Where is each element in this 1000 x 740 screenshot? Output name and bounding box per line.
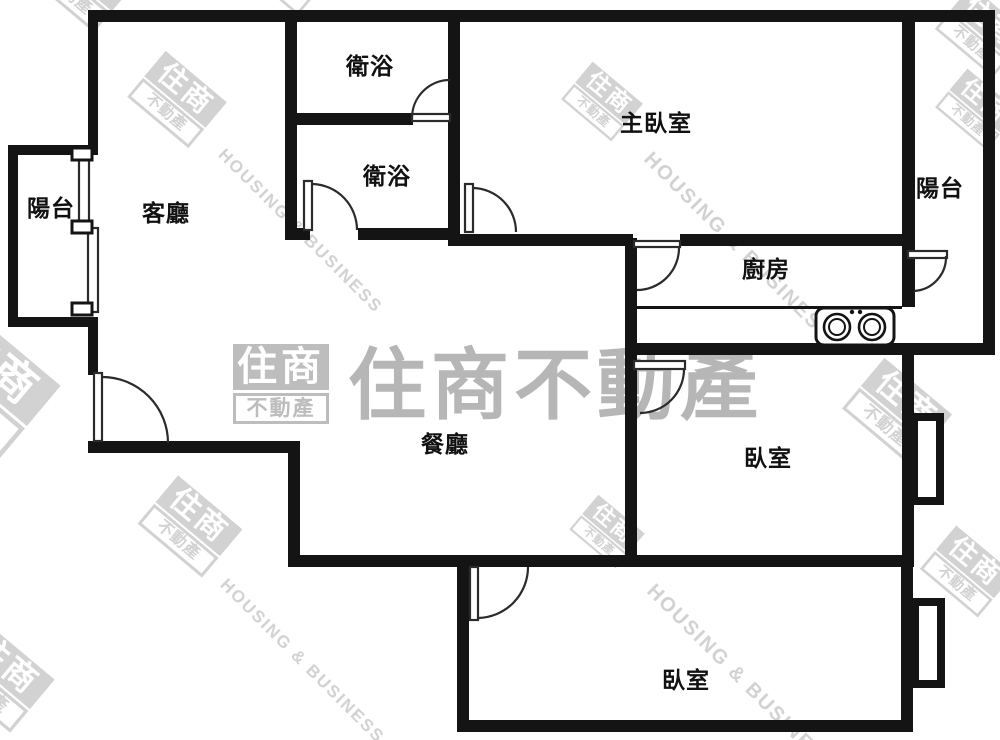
two-burner-gas-stove-icon — [816, 308, 894, 345]
room-label-bedroom-bottom: 臥室 — [662, 661, 710, 695]
walls — [8, 10, 995, 732]
room-label-bedroom-middle: 臥室 — [744, 439, 792, 473]
room-label-bathroom-lower: 衛浴 — [363, 157, 411, 191]
floor-plan-canvas: 住商 不動產 住商不動產 HOUSING & BUSINESS HOUSING … — [0, 0, 1000, 740]
room-label-master-bedroom: 主臥室 — [620, 104, 692, 138]
window-bump-bedroom-bottom — [915, 602, 941, 684]
room-label-bathroom-upper: 衛浴 — [346, 47, 394, 81]
room-label-living-room: 客廳 — [142, 194, 190, 228]
door-bathroom-lower — [304, 181, 357, 230]
door-bedroom-bottom — [470, 567, 528, 620]
room-label-kitchen: 廚房 — [742, 250, 790, 284]
floor-plan-drawing — [0, 0, 1000, 740]
door-bathroom-upper — [412, 80, 450, 121]
room-label-balcony-left: 陽台 — [27, 189, 75, 223]
window-bump-bedroom-middle — [914, 417, 940, 501]
door-master-bedroom — [465, 184, 516, 232]
room-label-dining-room: 餐廳 — [421, 425, 469, 459]
room-label-balcony-right: 陽台 — [916, 169, 964, 203]
door-kitchen — [634, 241, 680, 290]
door-bedroom-middle — [634, 361, 685, 413]
entry-door — [94, 373, 168, 443]
sliding-glass-door-balcony-left — [72, 148, 98, 315]
